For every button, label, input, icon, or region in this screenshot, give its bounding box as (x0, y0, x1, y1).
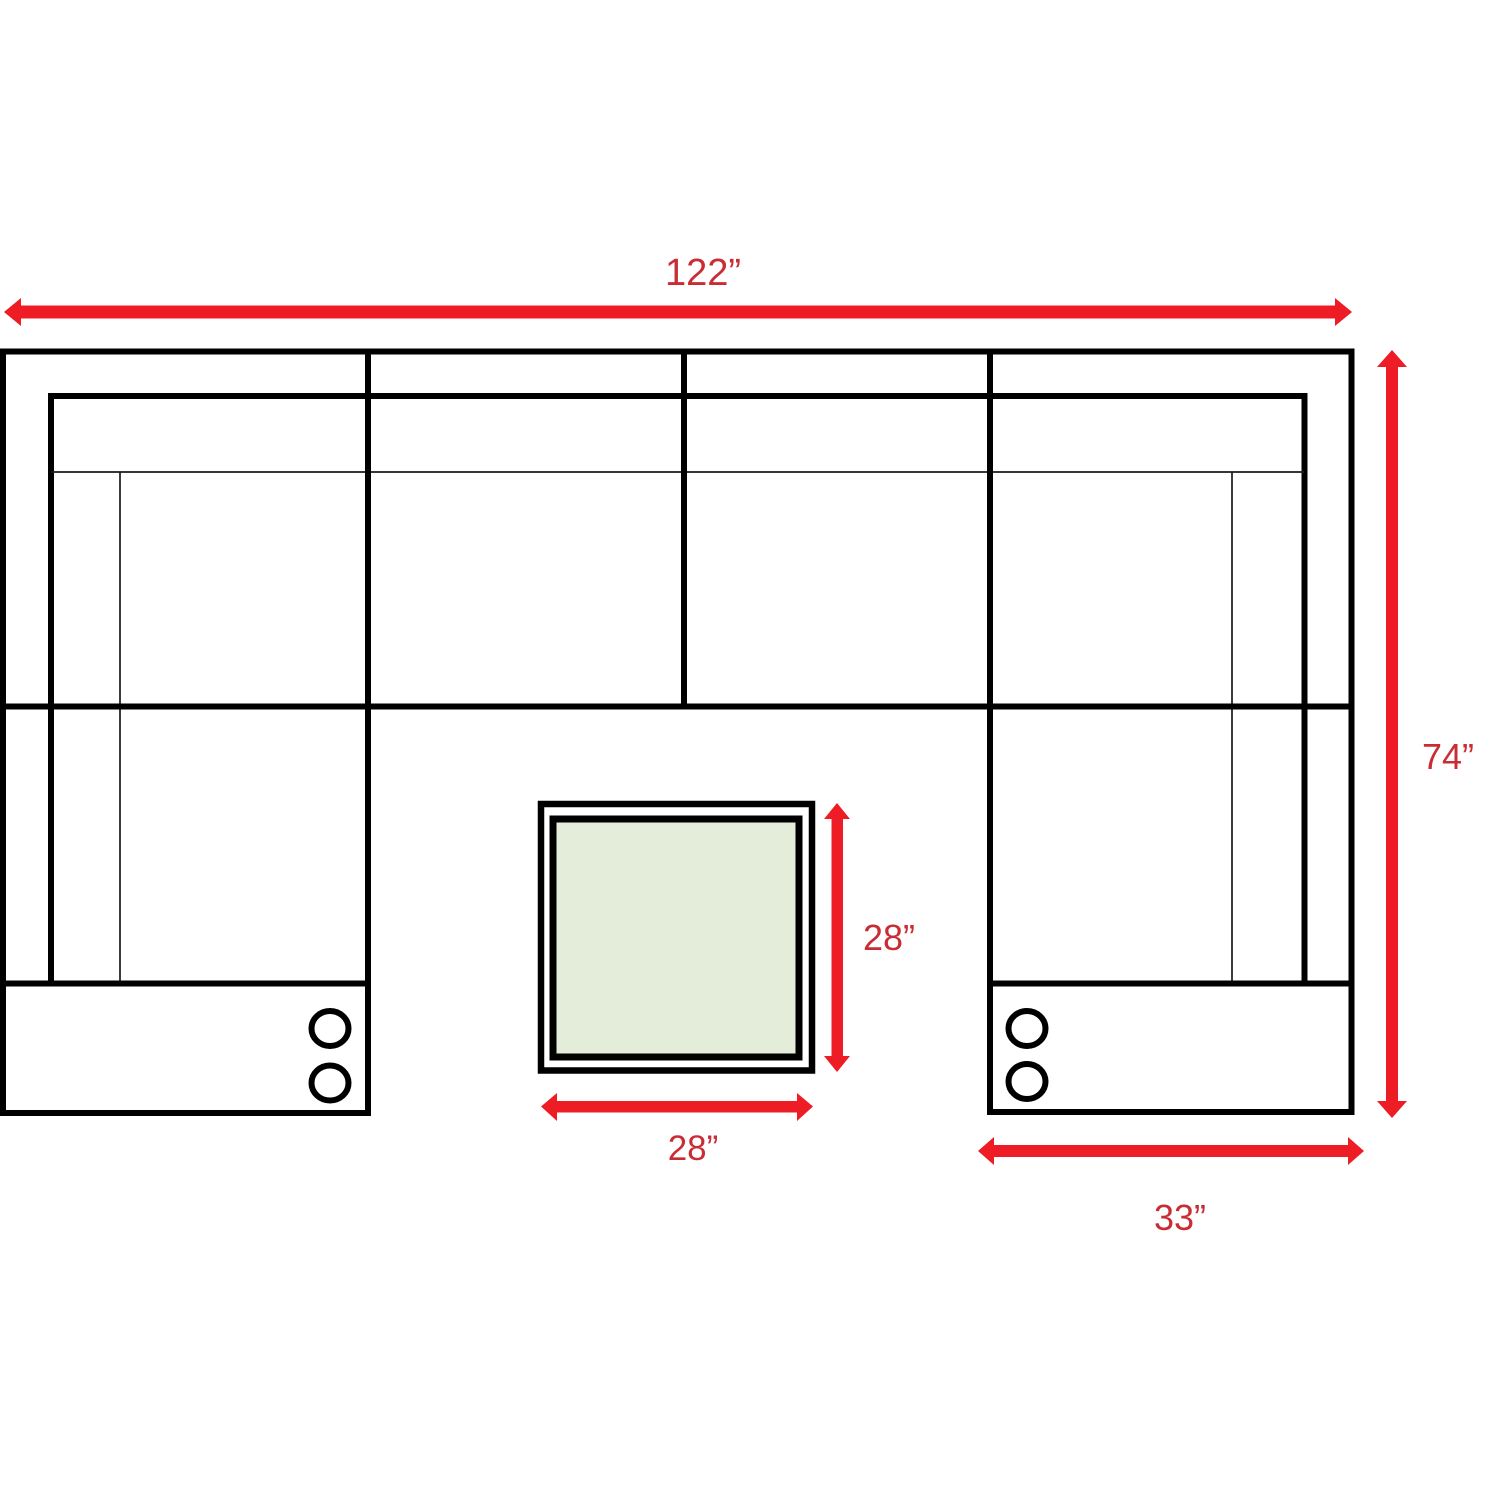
svg-text:33”: 33” (1154, 1197, 1206, 1238)
svg-text:74”: 74” (1422, 736, 1474, 777)
svg-text:28”: 28” (863, 917, 915, 958)
svg-text:122”: 122” (665, 252, 741, 294)
svg-text:28”: 28” (668, 1129, 719, 1168)
